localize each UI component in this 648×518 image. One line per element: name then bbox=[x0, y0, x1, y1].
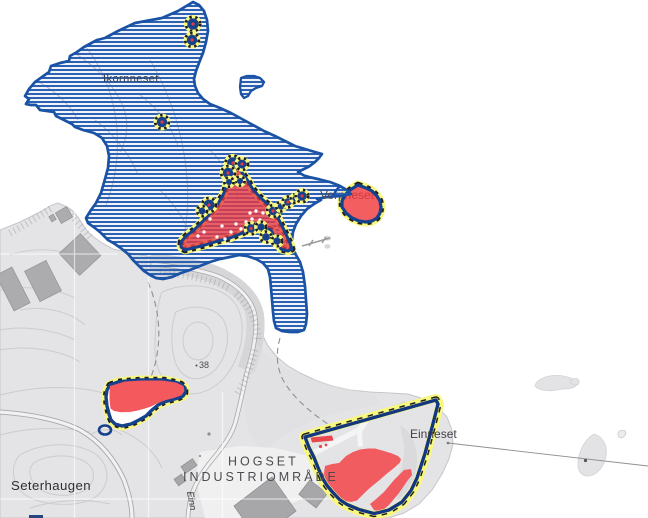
svg-text:HOGSET: HOGSET bbox=[228, 455, 299, 469]
svg-text:Seterhaugen: Seterhaugen bbox=[11, 478, 91, 493]
svg-text:Ikornneset: Ikornneset bbox=[103, 73, 159, 85]
svg-text:INDUSTRIOMRÅDE: INDUSTRIOMRÅDE bbox=[183, 469, 339, 484]
svg-text:Einneset: Einneset bbox=[410, 427, 457, 441]
svg-text:38: 38 bbox=[199, 360, 209, 370]
